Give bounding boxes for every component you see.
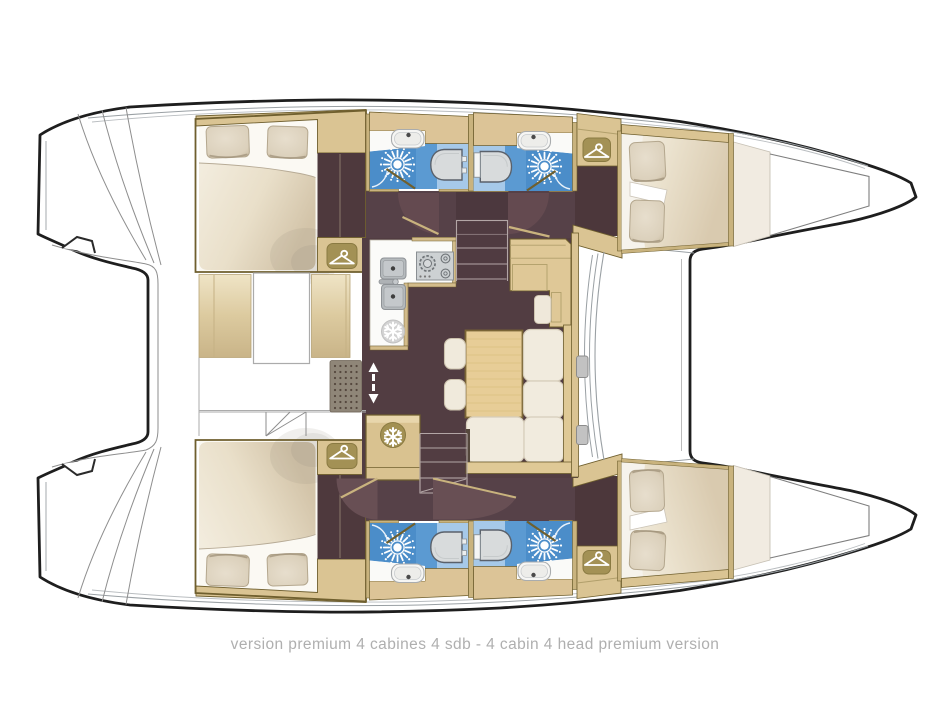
svg-text:version premium 4 cabines 4 sd: version premium 4 cabines 4 sdb - 4 cabi… xyxy=(231,636,720,653)
